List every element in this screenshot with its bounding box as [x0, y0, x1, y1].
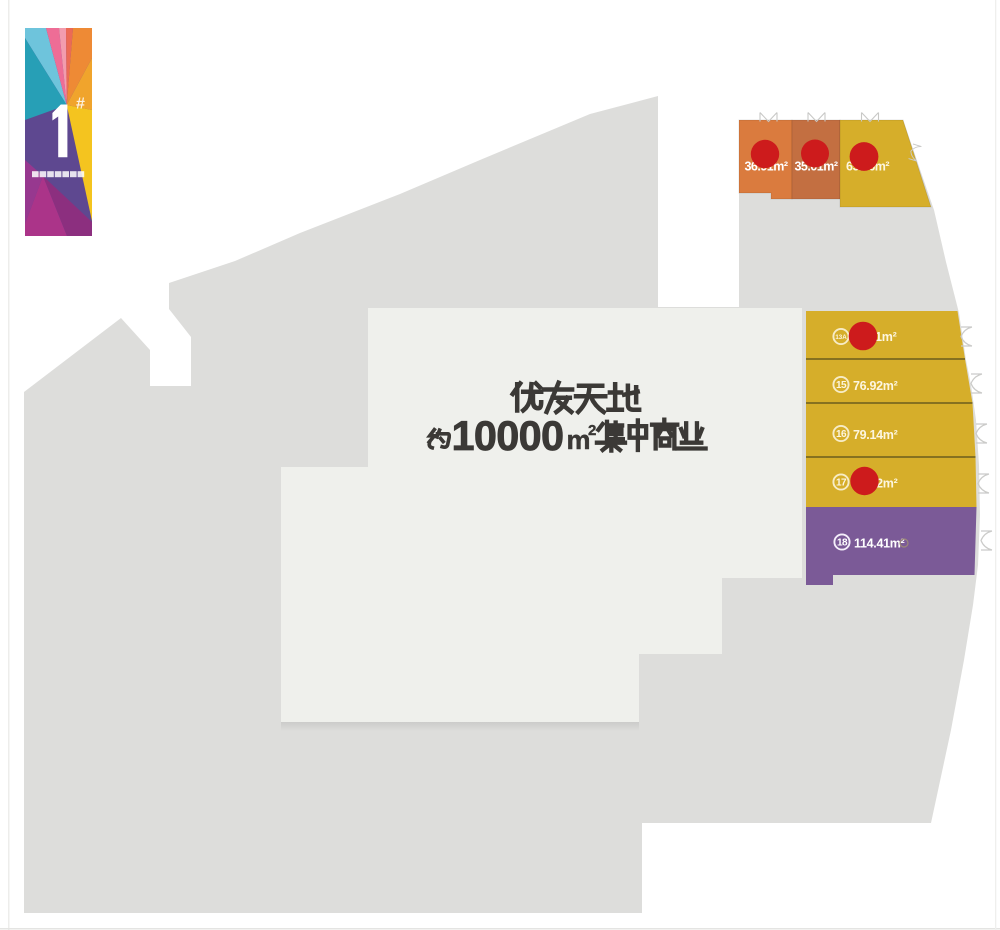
- svg-text:2: 2: [588, 422, 596, 439]
- svg-text:10000: 10000: [452, 412, 564, 459]
- svg-text:13A: 13A: [835, 334, 847, 341]
- svg-text:18: 18: [837, 538, 848, 549]
- svg-text:79.14m²: 79.14m²: [853, 428, 898, 442]
- svg-text:17: 17: [836, 478, 847, 489]
- svg-text:76.92m²: 76.92m²: [853, 379, 898, 393]
- svg-text:m: m: [567, 425, 591, 455]
- svg-text:#: #: [76, 96, 85, 113]
- svg-text:16: 16: [836, 429, 847, 440]
- svg-text:114.41m²: 114.41m²: [854, 537, 905, 551]
- svg-text:15: 15: [836, 380, 847, 391]
